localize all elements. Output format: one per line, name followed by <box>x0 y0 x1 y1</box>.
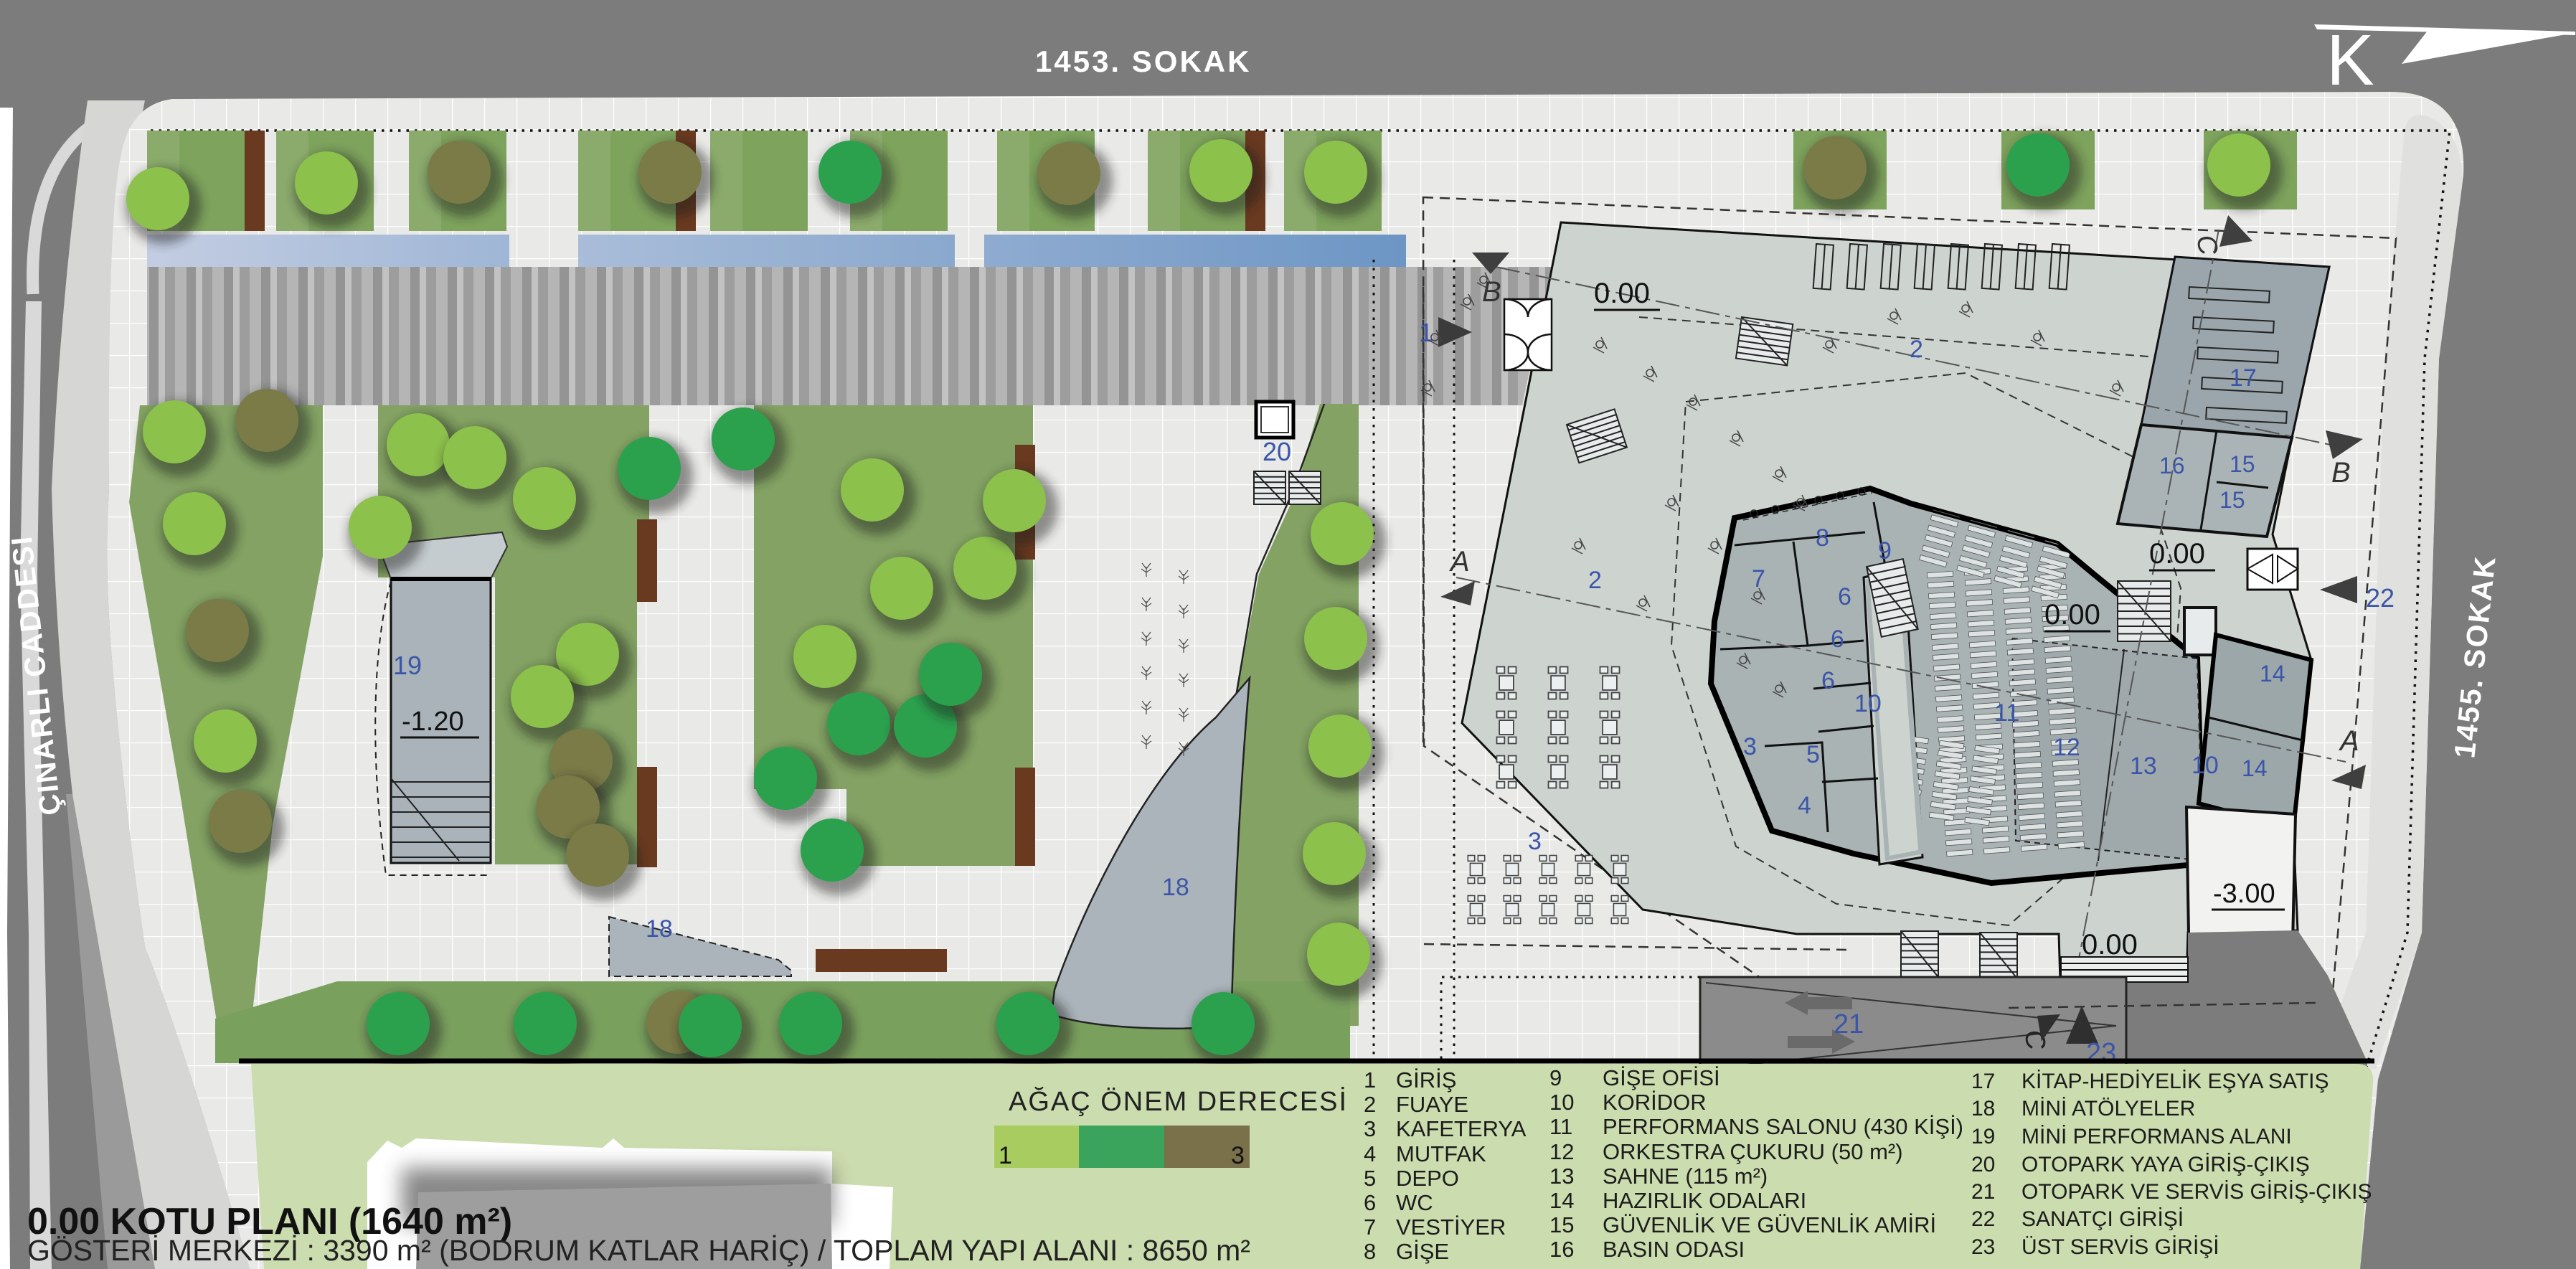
svg-text:4: 4 <box>1364 1141 1376 1166</box>
svg-text:BASIN ODASI: BASIN ODASI <box>1603 1237 1745 1262</box>
svg-text:3: 3 <box>1743 733 1757 760</box>
svg-text:WC: WC <box>1396 1190 1433 1215</box>
svg-text:SAHNE (115 m²): SAHNE (115 m²) <box>1603 1164 1768 1189</box>
svg-text:ORKESTRA ÇUKURU (50 m²): ORKESTRA ÇUKURU (50 m²) <box>1603 1139 1903 1164</box>
svg-text:FUAYE: FUAYE <box>1396 1092 1468 1117</box>
svg-text:SANATÇI GİRİŞİ: SANATÇI GİRİŞİ <box>2021 1207 2184 1231</box>
svg-text:KAFETERYA: KAFETERYA <box>1396 1116 1527 1141</box>
svg-text:14: 14 <box>1549 1188 1574 1213</box>
svg-text:GÜVENLİK VE GÜVENLİK AMİRİ: GÜVENLİK VE GÜVENLİK AMİRİ <box>1603 1212 1936 1237</box>
svg-text:5: 5 <box>1806 741 1820 768</box>
svg-text:VESTİYER: VESTİYER <box>1396 1214 1506 1240</box>
svg-text:3: 3 <box>1231 1142 1245 1169</box>
svg-text:19: 19 <box>393 651 422 680</box>
svg-text:18: 18 <box>1162 874 1189 901</box>
svg-text:K: K <box>2326 20 2374 100</box>
svg-text:13: 13 <box>2130 753 2157 780</box>
svg-text:22: 22 <box>1971 1207 1995 1231</box>
svg-text:0.00: 0.00 <box>2149 538 2205 570</box>
svg-text:MİNİ ATÖLYELER: MİNİ ATÖLYELER <box>2021 1097 2195 1121</box>
svg-text:14: 14 <box>2260 661 2285 687</box>
svg-text:12: 12 <box>1549 1139 1574 1164</box>
svg-text:6: 6 <box>1821 667 1835 694</box>
svg-text:15: 15 <box>1549 1212 1574 1237</box>
svg-text:22: 22 <box>2366 583 2395 613</box>
svg-text:2: 2 <box>1588 567 1602 594</box>
svg-text:14: 14 <box>2242 755 2268 781</box>
svg-text:4: 4 <box>1798 792 1811 819</box>
svg-text:KİTAP-HEDİYELİK EŞYA SATIŞ: KİTAP-HEDİYELİK EŞYA SATIŞ <box>2021 1070 2329 1093</box>
svg-text:1: 1 <box>1364 1067 1376 1093</box>
svg-text:6: 6 <box>1831 626 1844 653</box>
svg-text:11: 11 <box>1549 1114 1572 1139</box>
svg-text:B: B <box>1482 276 1501 308</box>
svg-text:13: 13 <box>1549 1164 1574 1189</box>
svg-text:ÜST SERVİS GİRİŞİ: ÜST SERVİS GİRİŞİ <box>2021 1235 2219 1259</box>
svg-text:17: 17 <box>1971 1070 1995 1093</box>
svg-text:2: 2 <box>1364 1092 1376 1117</box>
svg-text:6: 6 <box>1364 1190 1376 1215</box>
svg-text:18: 18 <box>646 915 673 943</box>
svg-text:17: 17 <box>2230 364 2257 392</box>
svg-text:PERFORMANS SALONU (430 KİŞİ): PERFORMANS SALONU (430 KİŞİ) <box>1603 1114 1963 1139</box>
svg-text:20: 20 <box>1263 437 1291 466</box>
svg-text:3: 3 <box>1528 828 1542 855</box>
svg-text:1: 1 <box>1419 318 1433 347</box>
svg-text:20: 20 <box>1971 1153 1995 1176</box>
svg-text:MİNİ PERFORMANS ALANI: MİNİ PERFORMANS ALANI <box>2021 1125 2292 1148</box>
svg-text:7: 7 <box>1364 1214 1376 1240</box>
svg-text:GİRİŞ: GİRİŞ <box>1396 1067 1456 1093</box>
svg-text:B: B <box>2331 457 2351 489</box>
svg-text:18: 18 <box>1971 1097 1995 1121</box>
svg-text:15: 15 <box>2230 451 2255 477</box>
svg-text:HAZIRLIK ODALARI: HAZIRLIK ODALARI <box>1603 1188 1806 1213</box>
svg-text:GİŞE OFİSİ: GİŞE OFİSİ <box>1603 1065 1720 1090</box>
svg-text:9: 9 <box>1549 1065 1562 1090</box>
svg-text:DEPO: DEPO <box>1396 1166 1459 1191</box>
svg-text:21: 21 <box>1971 1180 1995 1204</box>
svg-text:0.00: 0.00 <box>2082 929 2138 961</box>
svg-text:5: 5 <box>1364 1166 1376 1191</box>
svg-text:MUTFAK: MUTFAK <box>1396 1141 1486 1166</box>
svg-text:10: 10 <box>1854 690 1882 717</box>
svg-text:21: 21 <box>1834 1009 1864 1039</box>
svg-text:0.00: 0.00 <box>1594 278 1650 309</box>
svg-text:GİŞE: GİŞE <box>1396 1239 1449 1264</box>
svg-text:OTOPARK YAYA GİRİŞ-ÇIKIŞ: OTOPARK YAYA GİRİŞ-ÇIKIŞ <box>2021 1153 2310 1176</box>
svg-text:15: 15 <box>2219 487 2245 513</box>
svg-text:A: A <box>2339 725 2359 757</box>
svg-text:23: 23 <box>1971 1235 1995 1259</box>
svg-text:-3.00: -3.00 <box>2213 879 2275 909</box>
svg-text:8: 8 <box>1816 524 1829 552</box>
svg-text:KORİDOR: KORİDOR <box>1603 1090 1707 1115</box>
svg-text:16: 16 <box>1549 1237 1574 1262</box>
svg-text:10: 10 <box>1549 1090 1574 1115</box>
svg-text:8: 8 <box>1364 1239 1376 1264</box>
svg-text:1453. SOKAK: 1453. SOKAK <box>1035 44 1251 78</box>
svg-text:0.00: 0.00 <box>2044 599 2100 631</box>
svg-text:-1.20: -1.20 <box>402 707 464 737</box>
svg-text:GÖSTERİ MERKEZİ : 3390 m² (BOD: GÖSTERİ MERKEZİ : 3390 m² (BODRUM KATLAR… <box>27 1234 1250 1267</box>
svg-text:7: 7 <box>1752 565 1765 593</box>
svg-text:23: 23 <box>2086 1038 2116 1068</box>
svg-text:10: 10 <box>2192 752 2219 779</box>
svg-text:6: 6 <box>1838 583 1851 610</box>
svg-text:3: 3 <box>1364 1116 1376 1141</box>
svg-text:OTOPARK VE SERVİS GİRİŞ-ÇIKIŞ: OTOPARK VE SERVİS GİRİŞ-ÇIKIŞ <box>2021 1180 2372 1204</box>
svg-text:9: 9 <box>1878 537 1892 565</box>
svg-text:2: 2 <box>1910 336 1923 363</box>
svg-text:A: A <box>1449 546 1470 577</box>
svg-text:AĞAÇ ÖNEM DERECESİ: AĞAÇ ÖNEM DERECESİ <box>1009 1085 1348 1117</box>
svg-text:11: 11 <box>1994 699 2019 727</box>
svg-text:12: 12 <box>2053 734 2080 761</box>
svg-text:1: 1 <box>999 1142 1012 1169</box>
svg-text:19: 19 <box>1971 1125 1995 1148</box>
